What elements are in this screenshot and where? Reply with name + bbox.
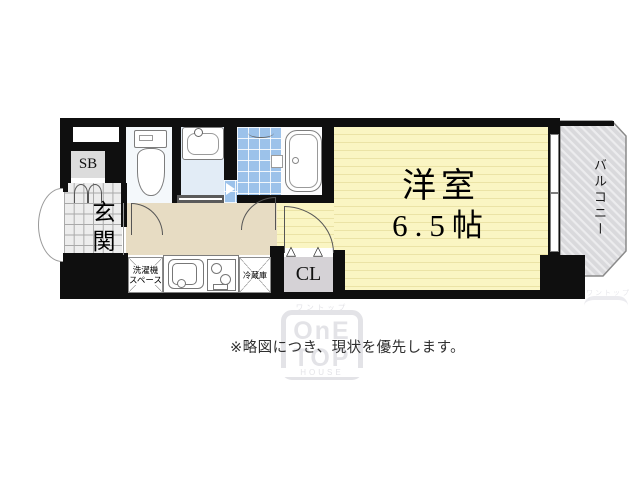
washer-label-line2: スペース — [129, 275, 162, 285]
balcony-label: バルコニー — [590, 158, 609, 238]
kitchen-sink-icon — [168, 259, 204, 289]
floor-plan-canvas: ワントップ OnE TOP HOUSE ワントップ バルコニー — [0, 0, 640, 480]
closet-label: CL — [296, 263, 322, 285]
toilet-bowl — [137, 148, 165, 196]
closet-box: CL — [284, 257, 333, 292]
wall-toilet-washroom — [172, 118, 181, 203]
bathtub-drain-icon — [292, 157, 299, 164]
entrance-step-line — [123, 203, 124, 255]
fridge-space-box: 冷蔵庫 — [239, 257, 271, 293]
room-size-label: 6.5帖 — [334, 200, 548, 245]
wall-bottomright-block — [540, 255, 585, 299]
wall-entrance-right — [121, 183, 127, 227]
shoe-box: SB — [71, 151, 105, 178]
washroom-threshold — [177, 195, 224, 203]
kitchen-unit — [163, 255, 239, 293]
watermark-partial-box — [584, 296, 628, 312]
watermark-house: HOUSE — [281, 368, 363, 377]
note-text: ※略図につき、現状を優先します。 — [230, 336, 465, 357]
washbasin — [182, 127, 224, 160]
wall-bath-bottom — [237, 195, 334, 203]
wall-bath-room — [322, 118, 334, 203]
stove-icon — [207, 259, 236, 291]
washer-label-line1: 洗濯機 — [133, 265, 159, 275]
shoe-box-label: SB — [79, 156, 97, 172]
window-balcony — [550, 134, 559, 252]
bathtub — [285, 130, 322, 192]
washbasin-faucet-icon — [194, 128, 203, 137]
pipe-space-box — [73, 127, 119, 142]
fridge-label: 冷蔵庫 — [240, 270, 270, 281]
wall-closet-left — [270, 246, 284, 298]
wall-top — [60, 118, 560, 127]
wall-washroom-bath — [224, 118, 237, 180]
wall-balcony-top — [560, 121, 614, 126]
entrance-door-swing — [38, 188, 63, 262]
wall-closet-right — [333, 250, 345, 298]
shower-icon — [248, 128, 274, 138]
bath-control-panel — [271, 155, 283, 168]
entrance-label: 玄関 — [84, 200, 118, 258]
shoe-box-gap — [71, 178, 105, 183]
washer-space-box: 洗濯機 スペース — [128, 257, 163, 293]
bath-folding-door-arrow — [226, 183, 235, 195]
toilet-tank — [134, 130, 167, 148]
